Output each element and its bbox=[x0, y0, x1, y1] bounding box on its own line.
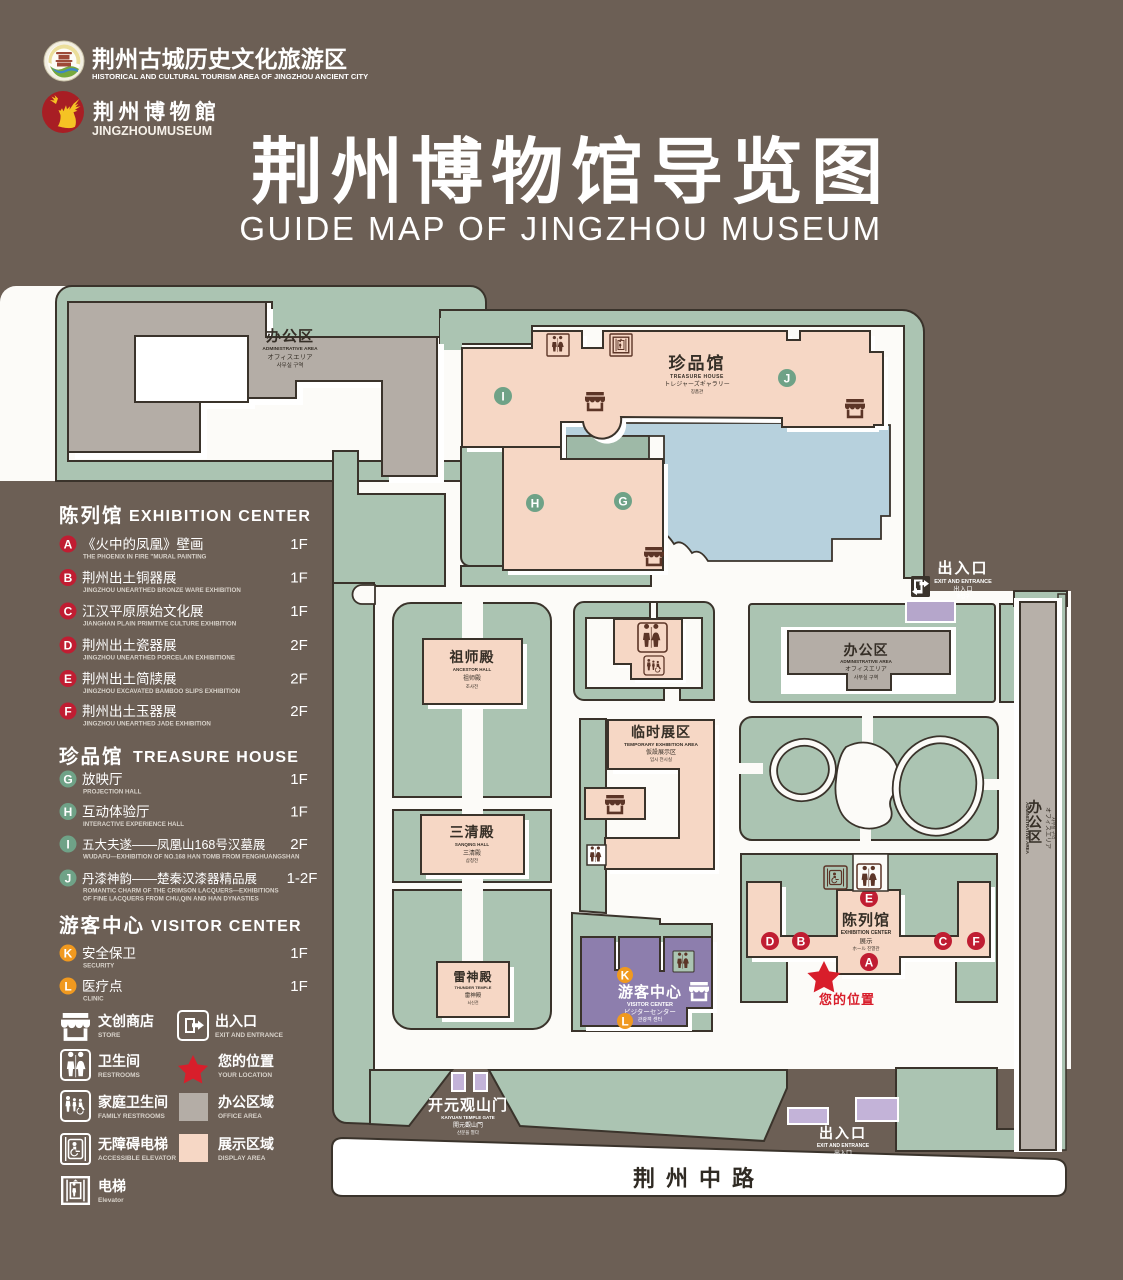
svg-text:《火中的凤凰》壁画: 《火中的凤凰》壁画 bbox=[82, 537, 204, 552]
svg-text:C: C bbox=[939, 935, 948, 949]
svg-text:삼청전: 삼청전 bbox=[466, 857, 478, 863]
svg-text:JINGZHOU UNEARTHED PORCELAIN E: JINGZHOU UNEARTHED PORCELAIN EXHIBITIONE bbox=[83, 655, 235, 662]
svg-text:出入口: 出入口 bbox=[953, 584, 973, 593]
svg-text:TREASURE HOUSE: TREASURE HOUSE bbox=[670, 374, 724, 380]
svg-text:TREASURE HOUSE: TREASURE HOUSE bbox=[133, 749, 299, 766]
svg-text:B: B bbox=[797, 935, 806, 949]
svg-text:丹漆神韵——楚秦汉漆器精品展: 丹漆神韵——楚秦汉漆器精品展 bbox=[82, 871, 257, 886]
svg-text:開元觀山門: 開元觀山門 bbox=[453, 1121, 483, 1129]
svg-text:雷神殿: 雷神殿 bbox=[453, 969, 492, 984]
svg-text:1F: 1F bbox=[290, 603, 308, 620]
svg-text:F: F bbox=[972, 935, 979, 949]
svg-text:游客中心: 游客中心 bbox=[59, 914, 145, 937]
svg-text:E: E bbox=[865, 892, 873, 906]
svg-text:ADMINISTRATIVE AREA: ADMINISTRATIVE AREA bbox=[262, 346, 318, 352]
svg-text:EXHIBITION CENTER: EXHIBITION CENTER bbox=[129, 508, 311, 525]
svg-text:展示: 展示 bbox=[860, 937, 874, 945]
svg-text:RESTROOMS: RESTROOMS bbox=[98, 1072, 141, 1079]
svg-text:文创商店: 文创商店 bbox=[98, 1013, 154, 1029]
svg-text:관광객 센터: 관광객 센터 bbox=[638, 1016, 662, 1023]
svg-text:YOUR LOCATION: YOUR LOCATION bbox=[218, 1072, 272, 1079]
svg-text:사무실 구역: 사무실 구역 bbox=[854, 674, 878, 681]
svg-text:办公区: 办公区 bbox=[844, 642, 889, 658]
svg-text:산문을 열다: 산문을 열다 bbox=[457, 1129, 480, 1136]
svg-text:EXHIBITION CENTER: EXHIBITION CENTER bbox=[841, 930, 892, 936]
svg-text:1F: 1F bbox=[290, 804, 308, 821]
svg-text:荆州博物馆导览图: 荆州博物馆导览图 bbox=[251, 133, 891, 213]
svg-text:2F: 2F bbox=[290, 671, 308, 688]
svg-text:K: K bbox=[621, 969, 630, 983]
svg-text:开元观山门: 开元观山门 bbox=[428, 1096, 508, 1114]
svg-text:江汉平原原始文化展: 江汉平原原始文化展 bbox=[82, 604, 204, 619]
svg-text:放映厅: 放映厅 bbox=[82, 772, 123, 787]
svg-text:DISPLAY AREA: DISPLAY AREA bbox=[218, 1155, 266, 1162]
svg-text:I: I bbox=[66, 837, 69, 851]
svg-text:D: D bbox=[766, 935, 775, 949]
svg-text:KAIYUAN TEMPLE GATE: KAIYUAN TEMPLE GATE bbox=[441, 1115, 494, 1120]
svg-text:珍品馆: 珍品馆 bbox=[59, 745, 124, 768]
svg-text:出入口: 出入口 bbox=[834, 1149, 852, 1157]
svg-text:ANCESTOR HALL: ANCESTOR HALL bbox=[453, 667, 492, 672]
svg-text:L: L bbox=[64, 979, 71, 993]
svg-text:2F: 2F bbox=[290, 836, 308, 853]
svg-text:출입구: 출입구 bbox=[837, 1156, 849, 1163]
svg-text:荆州出土简牍展: 荆州出土简牍展 bbox=[82, 671, 177, 687]
svg-text:뇌신전: 뇌신전 bbox=[467, 999, 478, 1005]
svg-text:オフィスエリア: オフィスエリア bbox=[845, 666, 887, 673]
svg-text:HISTORICAL AND CULTURAL TOURIS: HISTORICAL AND CULTURAL TOURISM AREA OF … bbox=[92, 72, 368, 81]
svg-text:G: G bbox=[618, 495, 627, 509]
svg-text:ホール 진열관: ホール 진열관 bbox=[852, 945, 879, 951]
svg-text:H: H bbox=[531, 497, 540, 511]
svg-text:荆州出土玉器展: 荆州出土玉器展 bbox=[82, 704, 177, 719]
svg-text:OF FINE LACQUERS FROM CHU,QIN: OF FINE LACQUERS FROM CHU,QIN AND HAN DY… bbox=[83, 896, 259, 903]
svg-text:H: H bbox=[64, 805, 73, 819]
svg-text:JINGZHOU UNEARTHED BRONZE WARE: JINGZHOU UNEARTHED BRONZE WARE EXHIBITIO… bbox=[83, 587, 241, 594]
svg-text:出入口: 出入口 bbox=[819, 1125, 867, 1141]
svg-text:임시 전시실: 임시 전시실 bbox=[650, 756, 672, 762]
svg-text:珍品馆: 珍品馆 bbox=[669, 353, 726, 373]
svg-text:仮設展示区: 仮設展示区 bbox=[646, 748, 676, 756]
svg-text:卫生间: 卫生间 bbox=[98, 1053, 140, 1069]
svg-text:出入口: 出入口 bbox=[937, 559, 988, 577]
svg-text:SECURITY: SECURITY bbox=[83, 963, 115, 970]
svg-text:VISITOR CENTER: VISITOR CENTER bbox=[627, 1002, 673, 1008]
svg-text:A: A bbox=[865, 956, 874, 970]
svg-text:STORE: STORE bbox=[98, 1032, 121, 1039]
svg-text:L: L bbox=[621, 1015, 628, 1029]
svg-text:D: D bbox=[64, 638, 73, 652]
svg-text:オフィスエリア: オフィスエリア bbox=[1044, 807, 1051, 849]
svg-text:陈列馆: 陈列馆 bbox=[59, 504, 124, 527]
svg-text:출입구: 출입구 bbox=[956, 593, 970, 600]
svg-text:办公区: 办公区 bbox=[266, 327, 314, 345]
svg-text:家庭卫生间: 家庭卫生间 bbox=[98, 1094, 168, 1110]
svg-text:E: E bbox=[64, 672, 72, 686]
svg-text:1-2F: 1-2F bbox=[287, 870, 318, 887]
svg-text:办公区域: 办公区域 bbox=[218, 1094, 274, 1110]
svg-text:J: J bbox=[65, 871, 72, 885]
svg-text:J: J bbox=[784, 372, 791, 386]
svg-text:无障碍电梯: 无障碍电梯 bbox=[97, 1136, 168, 1152]
svg-text:您的位置: 您的位置 bbox=[819, 992, 875, 1007]
svg-text:展示区域: 展示区域 bbox=[218, 1136, 274, 1152]
svg-text:游客中心: 游客中心 bbox=[618, 983, 682, 1001]
svg-text:Elevator: Elevator bbox=[98, 1197, 124, 1204]
svg-text:조사전: 조사전 bbox=[466, 683, 478, 690]
svg-text:FAMILY RESTROOMS: FAMILY RESTROOMS bbox=[98, 1113, 165, 1120]
svg-text:荆州古城历史文化旅游区: 荆州古城历史文化旅游区 bbox=[92, 46, 347, 72]
svg-text:EXIT AND ENTRANCE: EXIT AND ENTRANCE bbox=[817, 1143, 870, 1149]
svg-text:I: I bbox=[501, 390, 504, 404]
svg-text:C: C bbox=[64, 604, 73, 618]
svg-text:安全保卫: 安全保卫 bbox=[82, 945, 136, 961]
svg-text:1F: 1F bbox=[290, 978, 308, 995]
svg-text:1F: 1F bbox=[290, 771, 308, 788]
svg-text:2F: 2F bbox=[290, 637, 308, 654]
svg-text:B: B bbox=[64, 571, 73, 585]
svg-text:祖师殿: 祖师殿 bbox=[463, 674, 481, 682]
svg-text:1F: 1F bbox=[290, 945, 308, 962]
svg-text:荆州中路: 荆州中路 bbox=[633, 1166, 765, 1191]
svg-text:互动体验厅: 互动体验厅 bbox=[82, 805, 150, 820]
svg-text:A: A bbox=[64, 537, 73, 551]
svg-text:TEMPORARY EXHIBITION AREA: TEMPORARY EXHIBITION AREA bbox=[624, 742, 698, 748]
svg-text:SANQING HALL: SANQING HALL bbox=[455, 842, 490, 847]
svg-text:JINGZHOUMUSEUM: JINGZHOUMUSEUM bbox=[92, 124, 212, 138]
svg-text:2F: 2F bbox=[290, 703, 308, 720]
svg-text:ROMANTIC CHARM OF THE CRIMSON: ROMANTIC CHARM OF THE CRIMSON LACQUERS—E… bbox=[83, 888, 279, 895]
svg-text:ADMINISTRATIVE AREA: ADMINISTRATIVE AREA bbox=[1025, 802, 1030, 855]
svg-text:CLINIC: CLINIC bbox=[83, 996, 104, 1003]
svg-text:징품관: 징품관 bbox=[691, 388, 703, 394]
svg-text:出入口: 出入口 bbox=[215, 1013, 257, 1029]
svg-text:THE PHOENIX IN FIRE "MURAL PAI: THE PHOENIX IN FIRE "MURAL PAINTING bbox=[83, 554, 207, 561]
svg-text:荆州出土瓷器展: 荆州出土瓷器展 bbox=[82, 638, 177, 653]
svg-text:五大夫遂——凤凰山168号汉墓展: 五大夫遂——凤凰山168号汉墓展 bbox=[82, 838, 265, 852]
svg-text:G: G bbox=[63, 772, 72, 786]
svg-text:您的位置: 您的位置 bbox=[218, 1053, 274, 1069]
svg-text:JINGZHOU UNEARTHED JADE EXHIBI: JINGZHOU UNEARTHED JADE EXHIBITION bbox=[83, 721, 211, 728]
svg-text:사무실 구역: 사무실 구역 bbox=[277, 361, 304, 369]
svg-text:F: F bbox=[64, 704, 71, 718]
svg-text:VISITOR CENTER: VISITOR CENTER bbox=[151, 918, 302, 935]
svg-text:INTERACTIVE EXPERIENCE HALL: INTERACTIVE EXPERIENCE HALL bbox=[83, 821, 184, 828]
svg-text:사무실 구역: 사무실 구역 bbox=[1050, 817, 1057, 839]
svg-text:三清殿: 三清殿 bbox=[450, 824, 495, 840]
svg-text:1F: 1F bbox=[290, 536, 308, 553]
svg-text:ビジターセンター: ビジターセンター bbox=[624, 1007, 676, 1016]
svg-text:临时展区: 临时展区 bbox=[631, 724, 691, 740]
svg-text:荆州出土铜器展: 荆州出土铜器展 bbox=[82, 571, 177, 586]
svg-text:JIANGHAN PLAIN PRIMITIVE CULTU: JIANGHAN PLAIN PRIMITIVE CULTURE EXHIBIT… bbox=[83, 621, 237, 628]
svg-text:雷神殿: 雷神殿 bbox=[465, 991, 482, 999]
svg-text:WUDAFU—EXHIBITION OF NO.168 HA: WUDAFU—EXHIBITION OF NO.168 HAN TOMB FRO… bbox=[83, 854, 300, 861]
svg-text:JINGZHOU EXCAVATED BAMBOO SLIP: JINGZHOU EXCAVATED BAMBOO SLIPS EXHIBITI… bbox=[83, 688, 241, 695]
svg-text:三清殿: 三清殿 bbox=[463, 849, 481, 857]
svg-text:EXIT AND ENTRANCE: EXIT AND ENTRANCE bbox=[215, 1032, 284, 1039]
svg-text:オフィスエリア: オフィスエリア bbox=[267, 353, 313, 361]
svg-text:荆州博物館: 荆州博物館 bbox=[93, 100, 221, 124]
svg-text:OFFICE AREA: OFFICE AREA bbox=[218, 1113, 262, 1120]
svg-text:THUNDER TEMPLE: THUNDER TEMPLE bbox=[455, 985, 492, 990]
svg-text:1F: 1F bbox=[290, 570, 308, 587]
svg-text:EXIT AND ENTRANCE: EXIT AND ENTRANCE bbox=[934, 579, 992, 585]
svg-text:陈列馆: 陈列馆 bbox=[842, 911, 890, 929]
svg-text:ADMINISTRATIVE AREA: ADMINISTRATIVE AREA bbox=[840, 659, 893, 664]
svg-text:K: K bbox=[64, 946, 73, 960]
svg-text:医疗点: 医疗点 bbox=[82, 979, 123, 994]
svg-text:电梯: 电梯 bbox=[98, 1178, 126, 1194]
svg-text:トレジャーズギャラリー: トレジャーズギャラリー bbox=[664, 380, 729, 388]
svg-text:祖师殿: 祖师殿 bbox=[449, 649, 495, 665]
svg-text:PROJECTION HALL: PROJECTION HALL bbox=[83, 789, 142, 796]
svg-text:GUIDE MAP OF JINGZHOU MUSEUM: GUIDE MAP OF JINGZHOU MUSEUM bbox=[239, 210, 882, 247]
svg-text:ACCESSIBLE ELEVATOR: ACCESSIBLE ELEVATOR bbox=[98, 1155, 176, 1162]
